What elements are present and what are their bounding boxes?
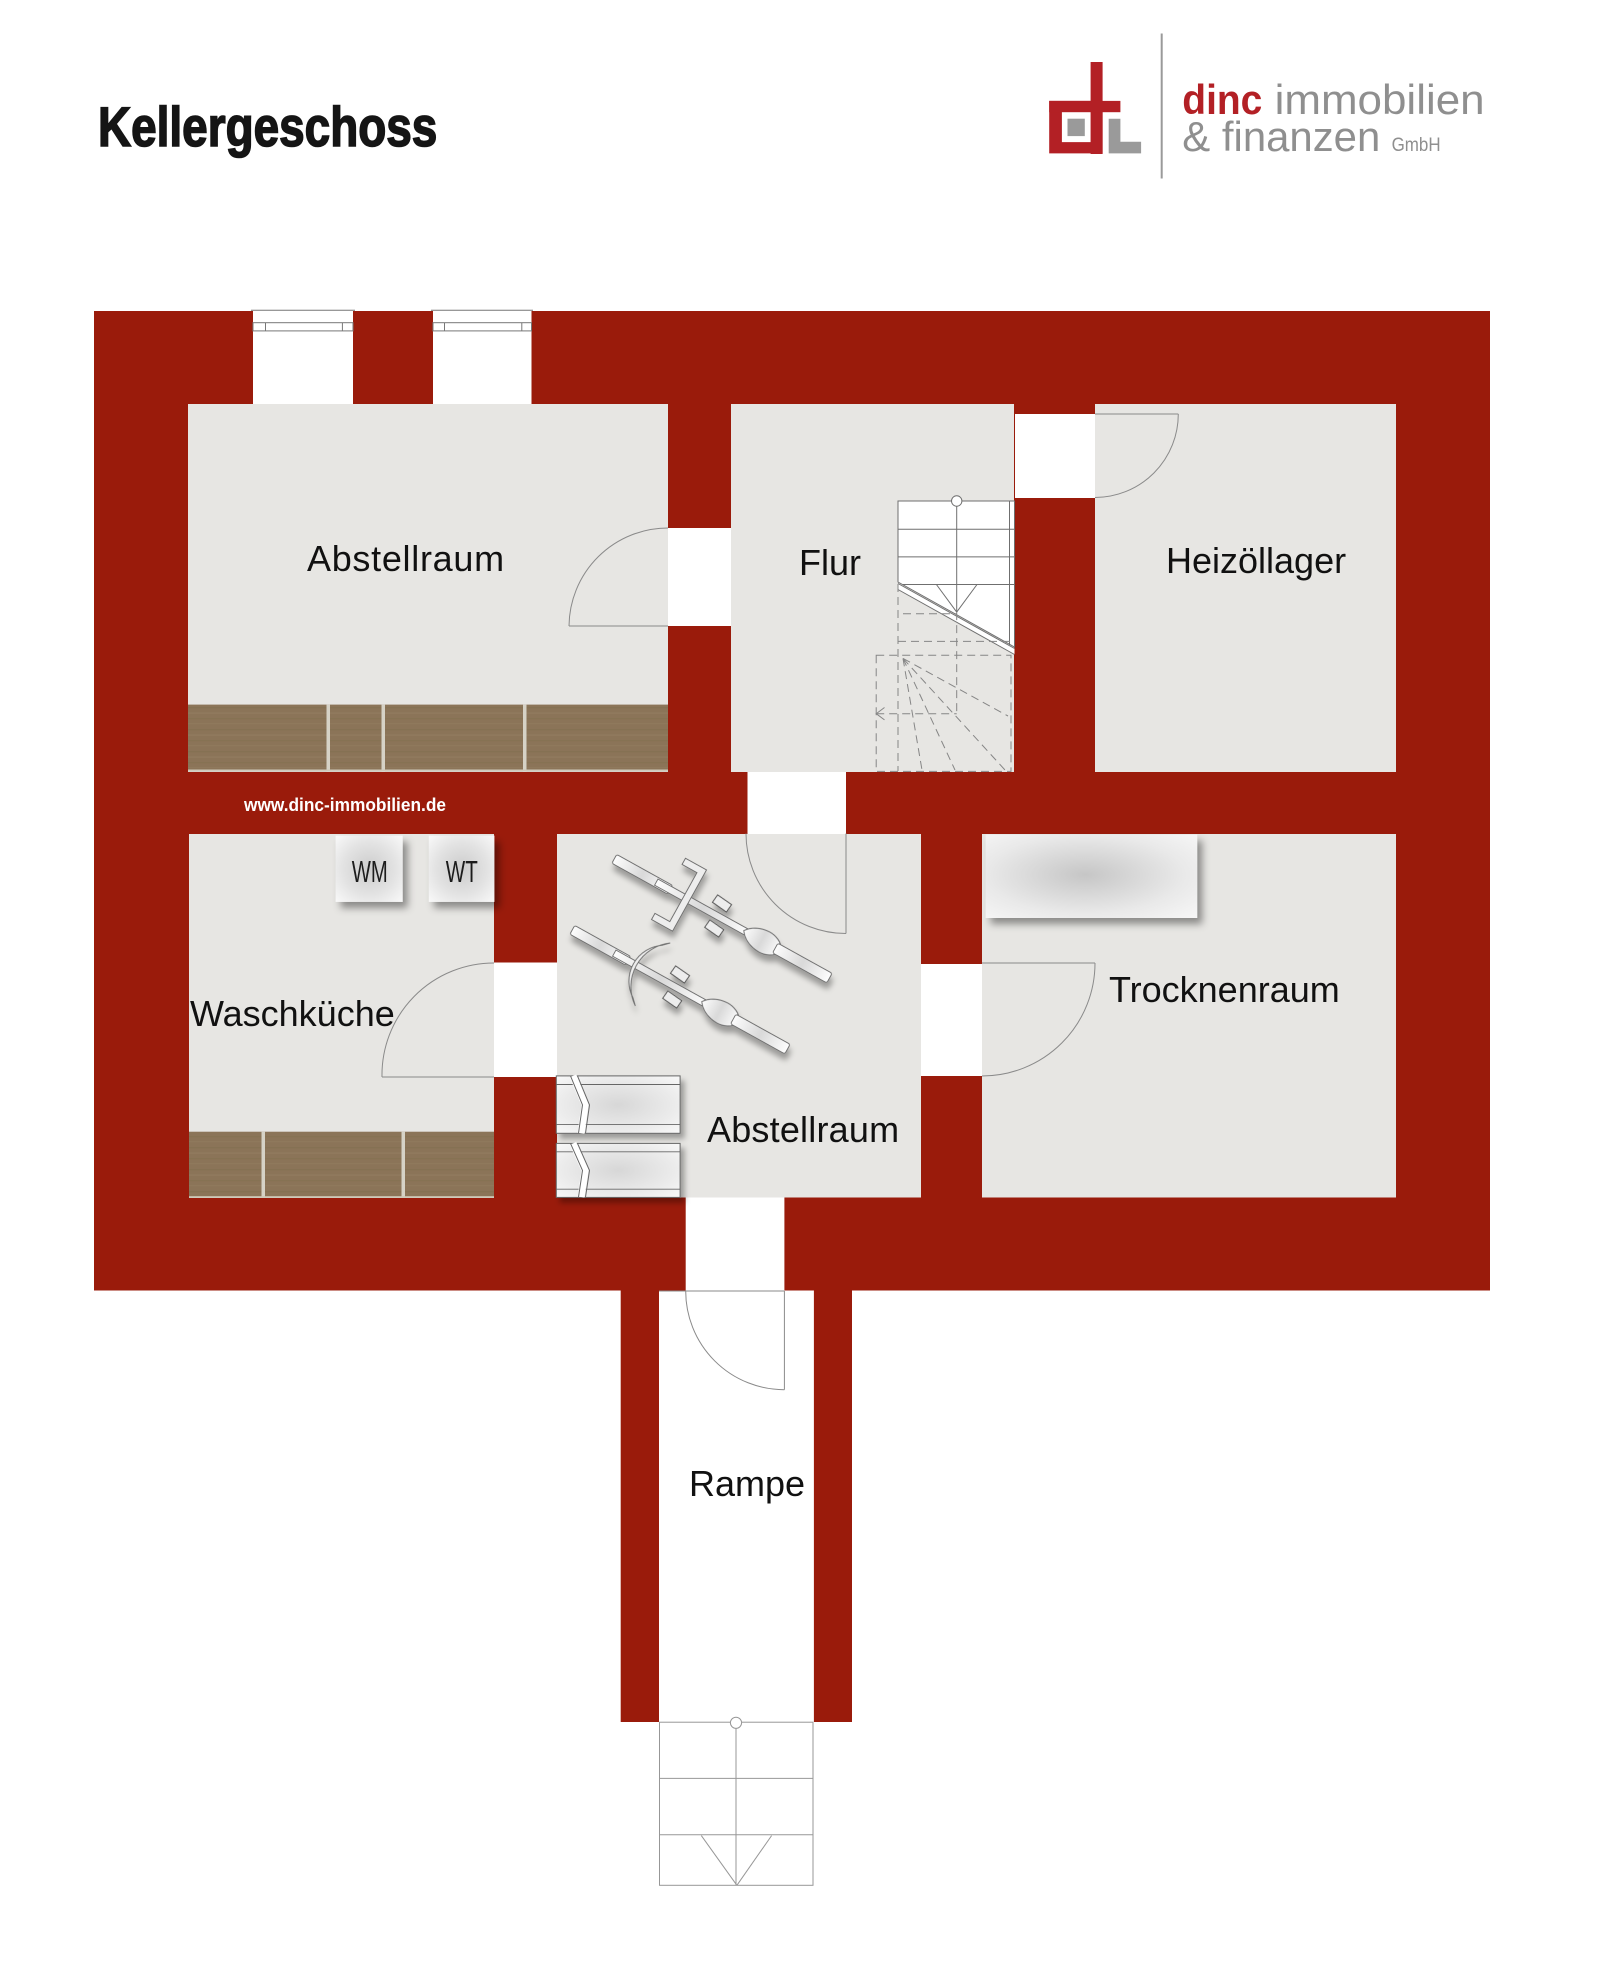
svg-text:Rampe: Rampe bbox=[689, 1463, 805, 1504]
svg-text:Kellergeschoss: Kellergeschoss bbox=[98, 96, 437, 158]
svg-text:Abstellraum: Abstellraum bbox=[307, 538, 505, 579]
svg-text:www.dinc-immobilien.de: www.dinc-immobilien.de bbox=[243, 795, 446, 815]
svg-text:GmbH: GmbH bbox=[1392, 135, 1441, 156]
svg-text:Trocknenraum: Trocknenraum bbox=[1109, 969, 1340, 1010]
svg-text:Flur: Flur bbox=[799, 542, 861, 583]
svg-text:Heizöllager: Heizöllager bbox=[1166, 540, 1346, 581]
svg-text:WM: WM bbox=[352, 854, 388, 889]
svg-text:& finanzen: & finanzen bbox=[1182, 113, 1380, 160]
svg-text:Waschküche: Waschküche bbox=[190, 993, 395, 1034]
svg-text:WT: WT bbox=[446, 854, 478, 889]
svg-text:Abstellraum: Abstellraum bbox=[707, 1109, 899, 1150]
